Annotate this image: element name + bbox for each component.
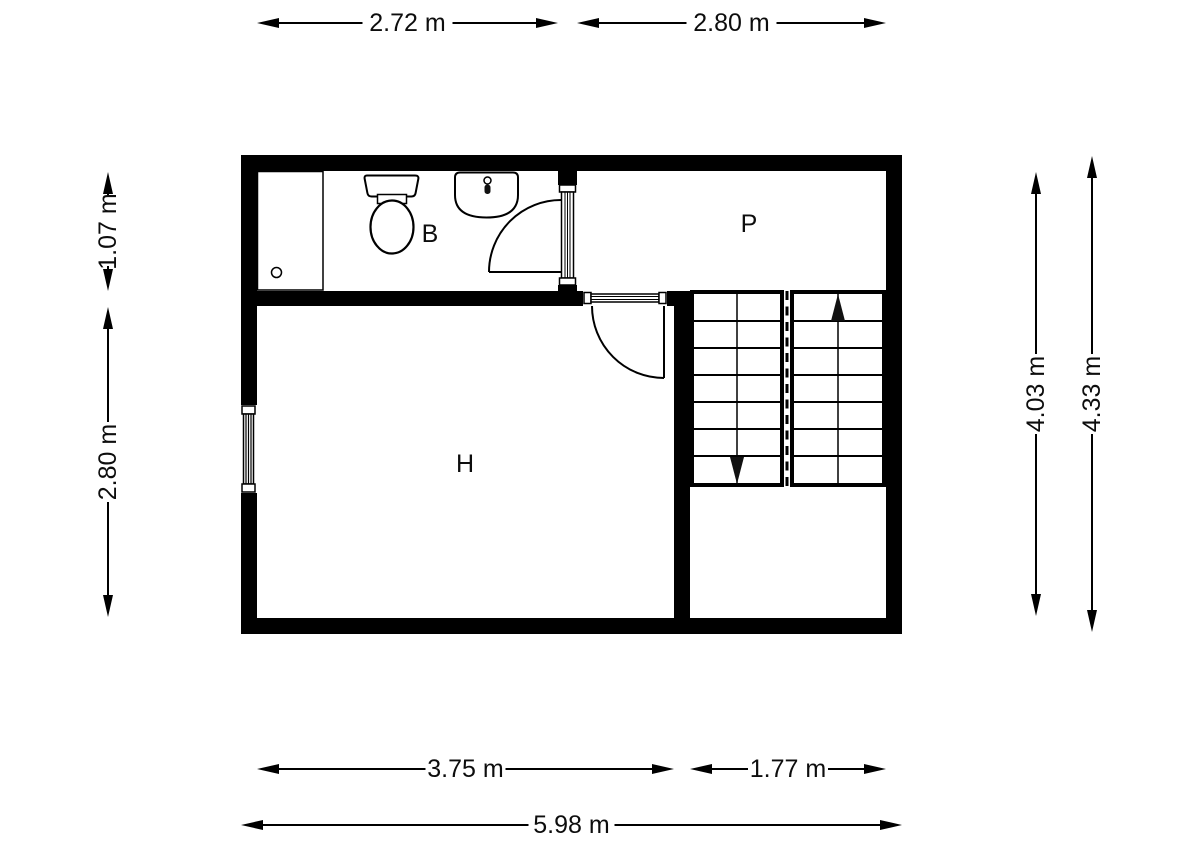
door-jamb-right (659, 293, 666, 304)
staircase (692, 291, 884, 486)
wall-bathroom-bottom (257, 291, 583, 306)
dim-arrowhead-top (103, 307, 113, 329)
dim-label: 3.75 m (427, 755, 503, 783)
sink-faucet-head (484, 177, 491, 184)
interior-walls (257, 171, 690, 618)
door-panel (591, 294, 659, 302)
dim-top-bathroom: 2.72 m (257, 9, 558, 37)
dim-arrowhead-left (257, 764, 279, 774)
stair-flight-right (792, 292, 884, 485)
shower-tray-icon (258, 172, 324, 291)
dim-right-total: 4.33 m (1078, 156, 1106, 632)
dim-top-landing: 2.80 m (577, 9, 886, 37)
room-label-landing: P (741, 210, 758, 238)
dim-arrowhead-left (690, 764, 712, 774)
wall-bath-landing-top-stub (558, 171, 577, 185)
dim-label: 1.77 m (750, 755, 826, 783)
dim-arrowhead-top (1087, 156, 1097, 178)
dim-arrowhead-top (103, 172, 113, 194)
window-left (242, 406, 255, 492)
dim-arrowhead-bottom (1031, 594, 1041, 616)
dim-left-hall: 2.80 m (94, 307, 122, 617)
dim-bottom-hall: 3.75 m (257, 755, 674, 783)
dim-arrowhead-left (577, 18, 599, 28)
window-sill-top (242, 406, 255, 414)
stair-flight-left (692, 292, 782, 485)
wall-right (886, 155, 902, 634)
dim-label: 2.80 m (693, 9, 769, 37)
dim-bottom-total: 5.98 m (241, 811, 902, 839)
dim-arrowhead-left (241, 820, 263, 830)
dim-arrowhead-right (864, 764, 886, 774)
wall-hall-stairs (674, 291, 690, 618)
floor-plan-svg: B P H 2.72 m 2.80 m 1.07 m (0, 0, 1200, 849)
wall-left-lower (241, 493, 257, 634)
door-swing-arc (592, 306, 664, 378)
window-sill-bottom (242, 484, 255, 492)
dim-label: 4.33 m (1078, 356, 1106, 432)
dim-arrowhead-bottom (1087, 610, 1097, 632)
dim-arrowhead-bottom (103, 595, 113, 617)
toilet-icon (365, 176, 419, 254)
dim-arrowhead-left (257, 18, 279, 28)
dim-bottom-stairs: 1.77 m (690, 755, 886, 783)
dim-label: 2.80 m (94, 424, 122, 500)
shower-tray-outline (258, 172, 324, 291)
dim-left-bathroom: 1.07 m (94, 172, 122, 291)
door-jamb-left (584, 293, 591, 304)
hall-door (584, 293, 666, 379)
dim-label: 1.07 m (94, 193, 122, 269)
dim-label: 4.03 m (1022, 356, 1050, 432)
wall-top (241, 155, 902, 171)
room-label-hall: H (456, 450, 474, 478)
dim-arrowhead-right (536, 18, 558, 28)
dim-right-inner: 4.03 m (1022, 172, 1050, 616)
toilet-tank (365, 176, 419, 197)
dim-arrowhead-right (652, 764, 674, 774)
door-jamb-top (560, 185, 576, 192)
dim-arrowhead-right (880, 820, 902, 830)
shower-drain (272, 268, 282, 278)
dim-arrowhead-right (864, 18, 886, 28)
room-label-bathroom: B (422, 220, 439, 248)
toilet-bowl (371, 201, 414, 254)
dim-label: 5.98 m (533, 811, 609, 839)
dim-arrowhead-top (1031, 172, 1041, 194)
sink-faucet-stem (485, 185, 491, 195)
floor-plan-page: B P H 2.72 m 2.80 m 1.07 m (0, 0, 1200, 849)
sink-icon (455, 173, 518, 218)
dim-label: 2.72 m (369, 9, 445, 37)
door-jamb-bottom (560, 278, 576, 285)
dim-arrowhead-bottom (103, 269, 113, 291)
wall-left-upper (241, 155, 257, 405)
wall-bottom (241, 618, 902, 634)
